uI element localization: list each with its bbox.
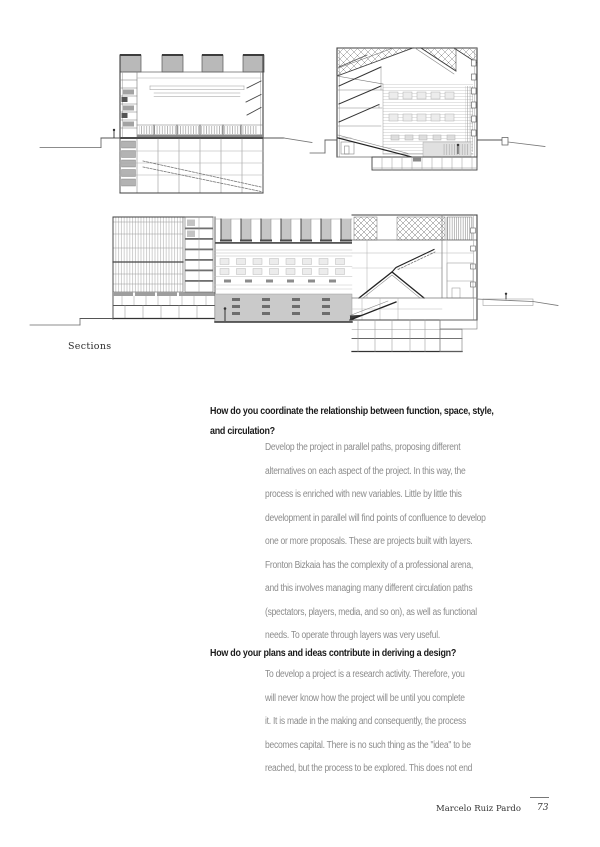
answer-2: To develop a project is a research activ…	[265, 663, 472, 781]
question-2: How do your plans and ideas contribute i…	[210, 643, 456, 663]
text-line: Fronton Bizkaia has the complexity of a …	[265, 554, 486, 578]
question-1: How do you coordinate the relationship b…	[210, 401, 494, 441]
right-trusses-and-stairs	[352, 215, 477, 320]
basement-levels	[120, 139, 263, 193]
text-line: development in parallel will find points…	[265, 507, 486, 531]
cross-section-drawing-1	[18, 42, 313, 200]
text-line: one or more proposals. These are project…	[265, 530, 486, 554]
right-basement-and-ramp	[350, 301, 477, 352]
text-line: it. It is made in the making and consequ…	[265, 710, 472, 734]
right-ground-and-figure	[477, 293, 558, 306]
stacked-rooms-column	[185, 217, 213, 292]
text-line: reached, but the process to be explored.…	[265, 757, 472, 781]
text-line: becomes capital. There is no such thing …	[265, 734, 472, 758]
text-line: alternatives on each aspect of the proje…	[265, 460, 486, 484]
seating-tier	[120, 125, 263, 139]
text-line: How do you coordinate the relationship b…	[210, 401, 494, 421]
figure-caption: Sections	[68, 341, 111, 352]
text-line: and this involves managing many differen…	[265, 577, 486, 601]
text-line: Develop the project in parallel paths, p…	[265, 436, 486, 460]
text-line: To develop a project is a research activ…	[265, 663, 472, 687]
text-line: process is enriched with new variables. …	[265, 483, 486, 507]
book-page: Sections How do you coordinate the relat…	[0, 0, 600, 847]
text-line: (spectators, players, media, and so on),…	[265, 601, 486, 625]
text-line: How do your plans and ideas contribute i…	[210, 643, 456, 663]
footer-author: Marcelo Ruiz Pardo	[436, 804, 521, 814]
answer-1: Develop the project in parallel paths, p…	[265, 436, 486, 648]
cross-section-drawing-2	[305, 38, 590, 210]
longitudinal-section-drawing	[22, 208, 584, 360]
page-number-rule	[530, 797, 549, 798]
text-line: will never know how the project will be …	[265, 687, 472, 711]
hatched-wing	[113, 217, 215, 319]
court-gray-band	[215, 294, 352, 322]
roof-trusses	[337, 48, 477, 84]
roof-monitors	[120, 54, 264, 72]
left-lower-floors	[30, 296, 215, 325]
hall-facade-bands	[215, 250, 352, 289]
page-number: 73	[537, 803, 548, 813]
